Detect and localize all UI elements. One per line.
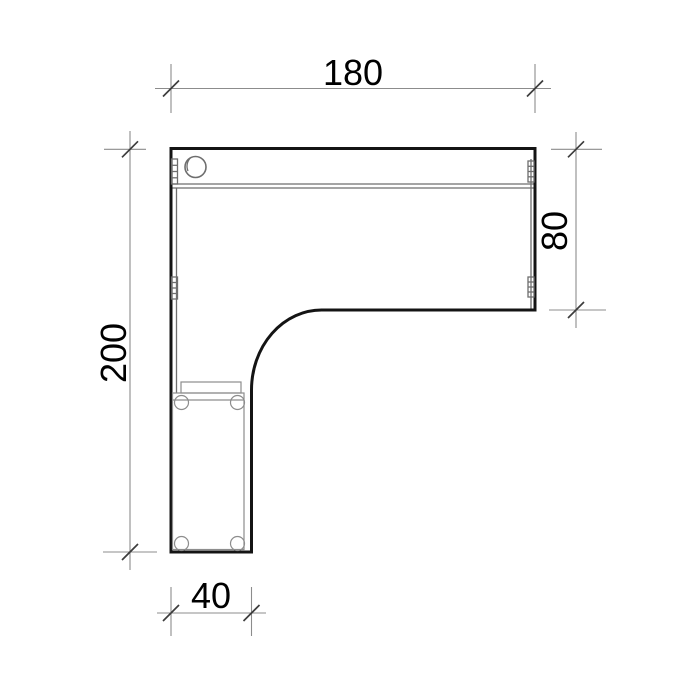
dimension-left: 200 [93, 131, 157, 570]
dimension-label-left: 200 [93, 323, 134, 383]
desk-outline [171, 149, 535, 553]
dimension-label-bottom: 40 [191, 575, 231, 616]
desk [171, 149, 535, 553]
technical-drawing: 180 80 200 40 [0, 0, 700, 700]
dimension-right: 80 [534, 132, 606, 328]
dimension-bottom: 40 [157, 575, 266, 636]
dimension-top: 180 [155, 52, 551, 113]
dimension-label-top: 180 [323, 52, 383, 93]
dimension-label-right: 80 [534, 211, 575, 251]
drawing-canvas: 180 80 200 40 [0, 0, 700, 700]
